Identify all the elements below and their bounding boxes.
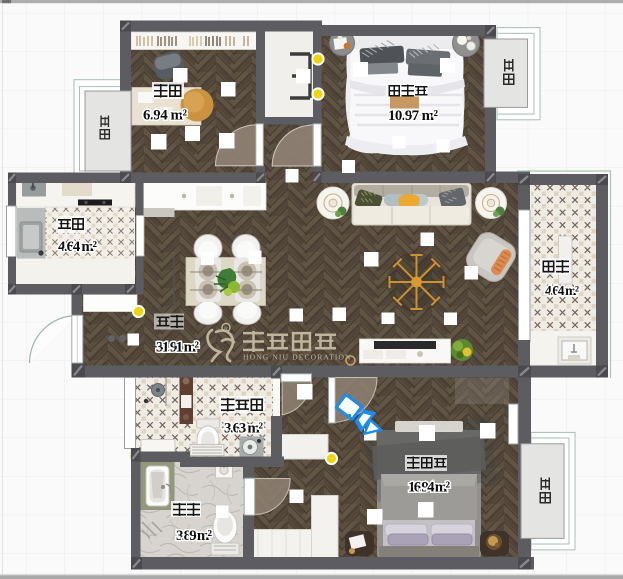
- svg-text:31.91 m²: 31.91 m²: [156, 340, 200, 356]
- svg-text:6.94 m²: 6.94 m²: [143, 108, 188, 124]
- svg-text:4.64 m²: 4.64 m²: [58, 239, 98, 255]
- svg-text:10.97 m²: 10.97 m²: [388, 108, 439, 124]
- svg-text:4.64 m²: 4.64 m²: [545, 283, 579, 298]
- svg-text:HONG NIU DECORATION: HONG NIU DECORATION: [243, 353, 352, 362]
- svg-text:3.63 m²: 3.63 m²: [224, 421, 264, 437]
- svg-text:16.94 m²: 16.94 m²: [408, 480, 451, 496]
- svg-text:3.89 m²: 3.89 m²: [176, 528, 213, 544]
- svg-text:R: R: [224, 327, 228, 333]
